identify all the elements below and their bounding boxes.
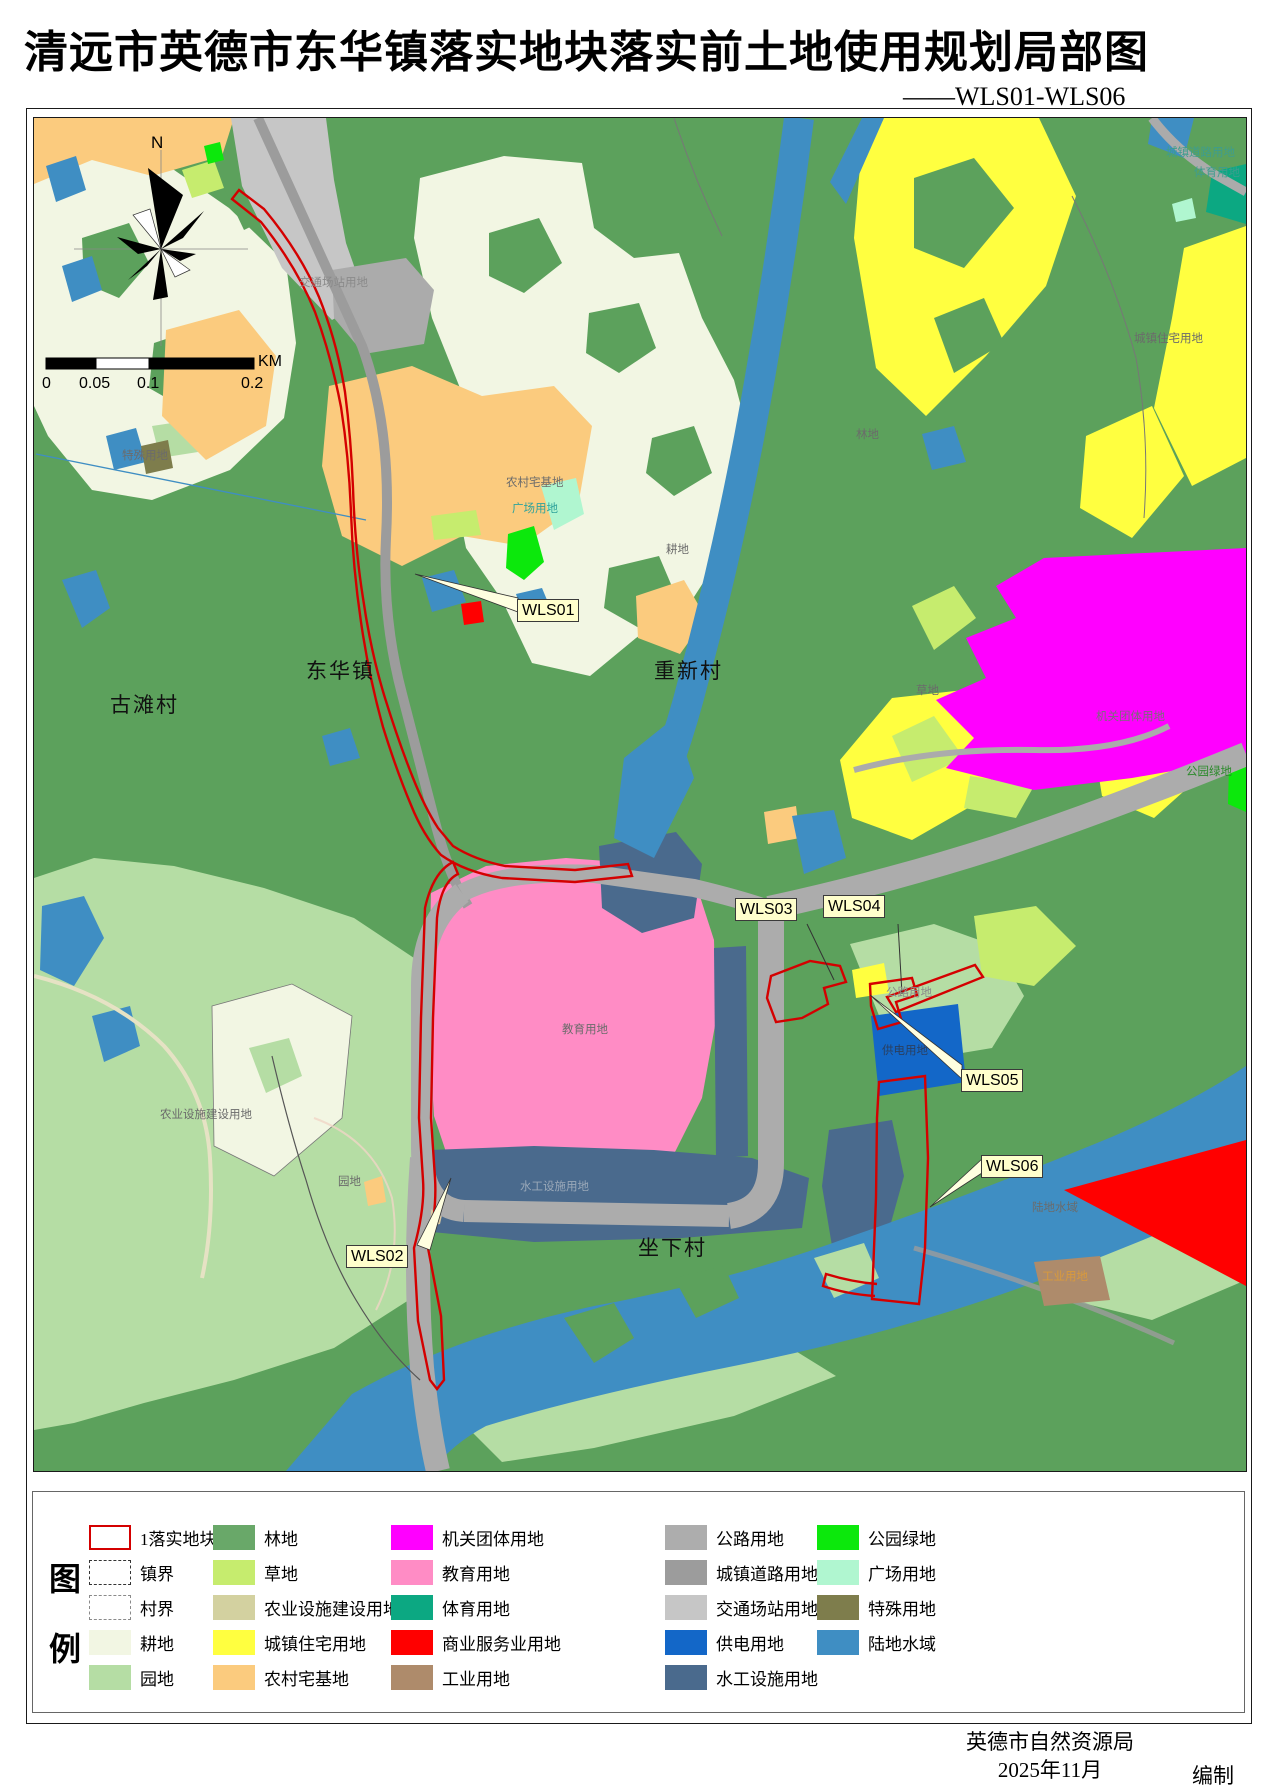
color-swatch: [89, 1630, 131, 1655]
legend-item: 教育用地: [391, 1555, 561, 1590]
scale-unit: KM: [258, 354, 282, 370]
parcel-outline-swatch: [89, 1525, 131, 1550]
color-swatch: [817, 1595, 859, 1620]
parcel-callout-wls05: WLS05: [961, 1069, 1023, 1092]
label-urban-residential: 城镇住宅用地: [1134, 334, 1203, 346]
color-swatch: [665, 1665, 707, 1690]
color-swatch: [89, 1665, 131, 1690]
color-swatch: [665, 1630, 707, 1655]
parcel-callout-wls02: WLS02: [346, 1245, 408, 1268]
label-urban-road: 城镇道路用地: [1166, 148, 1235, 160]
legend-item: 农村宅基地: [213, 1660, 400, 1695]
label-forest: 林地: [856, 430, 879, 442]
place-gutancun: 古滩村: [110, 695, 179, 716]
legend-column-1: 1落实地块 镇界 村界 耕地 园地: [89, 1520, 217, 1695]
place-chongxincun: 重新村: [654, 661, 723, 682]
color-swatch: [213, 1560, 255, 1585]
color-swatch: [665, 1560, 707, 1585]
legend-heading-tu: 图: [49, 1544, 81, 1614]
footer-date: 2025年11月: [860, 1756, 1240, 1784]
legend-item: 公园绿地: [817, 1520, 936, 1555]
footer-role: 编制: [1192, 1760, 1234, 1790]
label-plaza: 广场用地: [512, 504, 558, 516]
color-swatch: [213, 1630, 255, 1655]
legend-item: 1落实地块: [89, 1520, 217, 1555]
place-donghuazhen: 东华镇: [306, 661, 375, 682]
color-swatch: [213, 1665, 255, 1690]
label-cropland: 耕地: [666, 545, 689, 557]
label-orchard: 园地: [338, 1177, 361, 1189]
scale-tick-005: 0.05: [79, 376, 110, 392]
label-agri-facility: 农业设施建设用地: [160, 1110, 252, 1122]
label-grass: 草地: [916, 686, 939, 698]
color-swatch: [817, 1630, 859, 1655]
legend: 图 例 1落实地块 镇界 村界 耕地 园地 林地 草地 农业设施建设用地 城镇住…: [32, 1491, 1245, 1713]
legend-item: 园地: [89, 1660, 217, 1695]
label-sports: 体育用地: [1194, 168, 1240, 180]
legend-item: 农业设施建设用地: [213, 1590, 400, 1625]
label-water: 陆地水域: [1032, 1203, 1078, 1215]
legend-item: 村界: [89, 1590, 217, 1625]
legend-item: 水工设施用地: [665, 1660, 818, 1695]
label-park: 公园绿地: [1186, 767, 1232, 779]
parcel-callout-wls04: WLS04: [823, 895, 885, 918]
label-highway: 公路用地: [886, 988, 932, 1000]
legend-item: 交通场站用地: [665, 1590, 818, 1625]
label-government: 机关团体用地: [1096, 712, 1165, 724]
color-swatch: [391, 1665, 433, 1690]
label-rural-housing: 农村宅基地: [506, 478, 564, 490]
page-title: 清远市英德市东华镇落实地块落实前土地使用规划局部图: [24, 16, 1144, 80]
label-education: 教育用地: [562, 1025, 608, 1037]
footer-attribution: 英德市自然资源局 2025年11月: [860, 1728, 1240, 1785]
color-swatch: [391, 1525, 433, 1550]
color-swatch: [213, 1525, 255, 1550]
legend-item: 城镇道路用地: [665, 1555, 818, 1590]
legend-item: 供电用地: [665, 1625, 818, 1660]
legend-item: 体育用地: [391, 1590, 561, 1625]
legend-item: 林地: [213, 1520, 400, 1555]
legend-item: 草地: [213, 1555, 400, 1590]
legend-heading-li: 例: [49, 1614, 81, 1684]
parcel-callout-wls01: WLS01: [517, 599, 579, 622]
color-swatch: [817, 1560, 859, 1585]
legend-item: 特殊用地: [817, 1590, 936, 1625]
town-boundary-swatch: [89, 1560, 131, 1585]
legend-item: 机关团体用地: [391, 1520, 561, 1555]
legend-column-4: 公路用地 城镇道路用地 交通场站用地 供电用地 水工设施用地: [665, 1520, 818, 1695]
color-swatch: [391, 1630, 433, 1655]
legend-column-3: 机关团体用地 教育用地 体育用地 商业服务业用地 工业用地: [391, 1520, 561, 1695]
scale-tick-02: 0.2: [241, 376, 263, 392]
label-transport-station: 交通场站用地: [299, 278, 368, 290]
label-industrial: 工业用地: [1042, 1272, 1088, 1284]
label-power: 供电用地: [882, 1046, 928, 1058]
color-swatch: [391, 1595, 433, 1620]
parcel-callout-wls03: WLS03: [735, 898, 797, 921]
legend-item: 耕地: [89, 1625, 217, 1660]
legend-column-5: 公园绿地 广场用地 特殊用地 陆地水域: [817, 1520, 936, 1660]
legend-item: 城镇住宅用地: [213, 1625, 400, 1660]
place-zuoxiacun: 坐下村: [638, 1238, 707, 1259]
color-swatch: [391, 1560, 433, 1585]
legend-item: 公路用地: [665, 1520, 818, 1555]
village-boundary-swatch: [89, 1595, 131, 1620]
legend-item: 商业服务业用地: [391, 1625, 561, 1660]
map-canvas: N 0 0.05 0.1 0.2 KM 东华镇 重新村 古滩村 坐下村 交通场站…: [33, 117, 1247, 1472]
legend-heading: 图 例: [49, 1544, 81, 1685]
label-special: 特殊用地: [122, 451, 168, 463]
footer-agency-name: 英德市自然资源局: [860, 1728, 1240, 1756]
color-swatch: [665, 1595, 707, 1620]
color-swatch: [817, 1525, 859, 1550]
scale-bar: [46, 358, 254, 369]
parcel-callout-wls06: WLS06: [981, 1155, 1043, 1178]
legend-item: 工业用地: [391, 1660, 561, 1695]
north-label: N: [151, 134, 163, 151]
legend-item: 陆地水域: [817, 1625, 936, 1660]
label-hydraulic: 水工设施用地: [520, 1182, 589, 1194]
map-drawing: [34, 118, 1246, 1471]
legend-column-2: 林地 草地 农业设施建设用地 城镇住宅用地 农村宅基地: [213, 1520, 400, 1695]
legend-item: 广场用地: [817, 1555, 936, 1590]
scale-tick-0: 0: [42, 376, 51, 392]
color-swatch: [665, 1525, 707, 1550]
scale-tick-01: 0.1: [137, 376, 159, 392]
color-swatch: [213, 1595, 255, 1620]
planning-map-page: 清远市英德市东华镇落实地块落实前土地使用规划局部图 ——WLS01-WLS06: [0, 0, 1266, 1792]
legend-item: 镇界: [89, 1555, 217, 1590]
